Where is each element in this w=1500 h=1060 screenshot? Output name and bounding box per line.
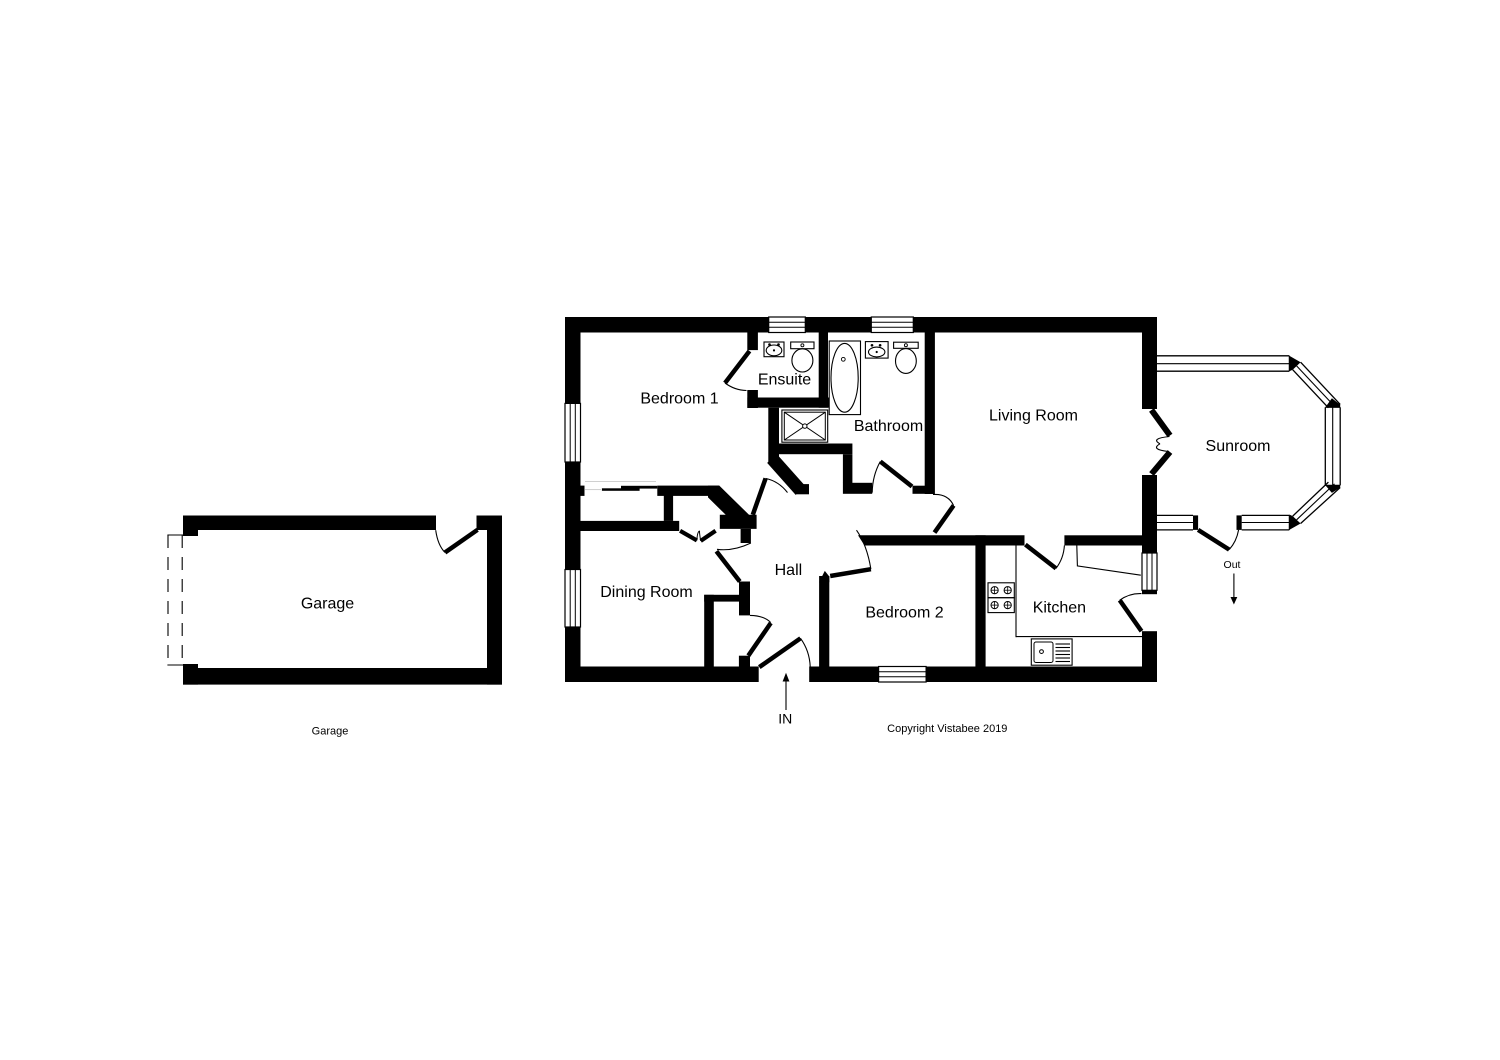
svg-text:Hall: Hall [775, 562, 803, 579]
svg-text:Copyright Vistabee 2019: Copyright Vistabee 2019 [887, 723, 1007, 735]
svg-text:Ensuite: Ensuite [758, 372, 811, 389]
svg-text:Dining Room: Dining Room [600, 584, 692, 601]
svg-text:Sunroom: Sunroom [1206, 438, 1271, 455]
svg-text:Bedroom 2: Bedroom 2 [865, 605, 943, 622]
svg-text:IN: IN [778, 711, 792, 727]
svg-text:Kitchen: Kitchen [1033, 600, 1086, 617]
svg-text:Garage: Garage [301, 596, 354, 613]
svg-text:Bedroom 1: Bedroom 1 [640, 391, 718, 408]
svg-text:Living Room: Living Room [989, 408, 1078, 425]
svg-text:Garage: Garage [312, 726, 349, 738]
svg-text:Bathroom: Bathroom [854, 418, 923, 435]
svg-text:Out: Out [1224, 559, 1241, 571]
